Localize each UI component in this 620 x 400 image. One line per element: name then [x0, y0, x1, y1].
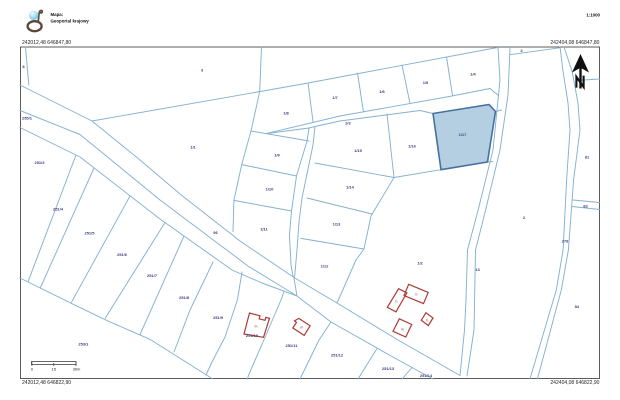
- svg-text:251/3: 251/3: [34, 160, 45, 165]
- svg-text:m: m: [401, 328, 404, 332]
- svg-text:1/2: 1/2: [417, 261, 423, 266]
- svg-text:251/7: 251/7: [147, 273, 158, 278]
- svg-text:253/1: 253/1: [78, 342, 89, 347]
- svg-text:251/4: 251/4: [53, 207, 64, 212]
- svg-text:b: b: [426, 319, 428, 323]
- svg-text:1/1: 1/1: [190, 145, 196, 150]
- svg-text:30m: 30m: [73, 367, 81, 372]
- svg-text:15: 15: [51, 367, 56, 372]
- svg-text:m: m: [255, 325, 258, 329]
- svg-text:242012,48 646847,80: 242012,48 646847,80: [22, 40, 71, 46]
- svg-text:1/15: 1/15: [354, 148, 363, 153]
- svg-text:251/10: 251/10: [246, 333, 259, 338]
- svg-text:1/13: 1/13: [333, 222, 342, 227]
- svg-text:242012,48 646822,90: 242012,48 646822,90: [22, 380, 71, 386]
- svg-text:1/6: 1/6: [379, 89, 385, 94]
- svg-text:1/11: 1/11: [260, 227, 268, 232]
- svg-text:251/6: 251/6: [117, 252, 128, 257]
- svg-text:1:1000: 1:1000: [586, 13, 600, 18]
- svg-text:Mapa:: Mapa:: [51, 12, 64, 17]
- svg-text:1/8: 1/8: [283, 111, 289, 116]
- svg-text:251/8: 251/8: [179, 295, 190, 300]
- svg-text:84: 84: [575, 304, 580, 309]
- svg-text:1/10: 1/10: [266, 187, 275, 192]
- svg-text:1/5: 1/5: [423, 80, 429, 85]
- svg-text:1/14: 1/14: [346, 185, 355, 190]
- svg-text:83: 83: [583, 204, 588, 209]
- svg-text:1/16: 1/16: [408, 144, 417, 149]
- svg-text:81: 81: [585, 155, 590, 160]
- svg-text:251/9: 251/9: [213, 315, 224, 320]
- svg-text:251/13: 251/13: [382, 366, 395, 371]
- svg-text:1/9: 1/9: [274, 153, 280, 158]
- svg-text:242404,08 646822,90: 242404,08 646822,90: [550, 380, 599, 386]
- svg-text:251/12: 251/12: [331, 352, 344, 357]
- svg-text:1/17: 1/17: [459, 132, 468, 137]
- svg-text:1/12: 1/12: [321, 264, 330, 269]
- svg-text:b: b: [416, 293, 418, 297]
- svg-text:1/7: 1/7: [332, 95, 338, 100]
- svg-text:13: 13: [475, 267, 480, 272]
- svg-text:Geoportal krajowy: Geoportal krajowy: [51, 18, 90, 23]
- svg-text:242404,08 646847,80: 242404,08 646847,80: [550, 40, 599, 46]
- svg-text:251/14: 251/14: [420, 373, 433, 378]
- svg-text:b: b: [396, 300, 398, 304]
- svg-text:m: m: [300, 326, 303, 330]
- svg-text:1/3: 1/3: [345, 121, 351, 126]
- svg-text:96: 96: [213, 230, 218, 235]
- svg-text:278: 278: [562, 239, 569, 244]
- svg-text:251/5: 251/5: [84, 231, 95, 236]
- svg-text:251/11: 251/11: [285, 343, 298, 348]
- svg-text:1/4: 1/4: [470, 72, 476, 77]
- svg-text:255/1: 255/1: [22, 116, 33, 121]
